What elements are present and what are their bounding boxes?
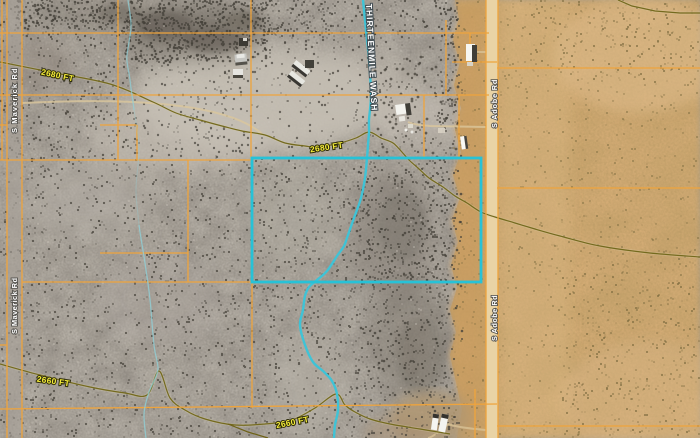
svg-text:S Adobe Rd: S Adobe Rd bbox=[490, 295, 499, 341]
svg-text:S Maverick Rd: S Maverick Rd bbox=[10, 67, 19, 133]
svg-text:S Adobe Rd: S Adobe Rd bbox=[490, 79, 499, 128]
svg-text:S Maverick Rd: S Maverick Rd bbox=[10, 278, 19, 334]
